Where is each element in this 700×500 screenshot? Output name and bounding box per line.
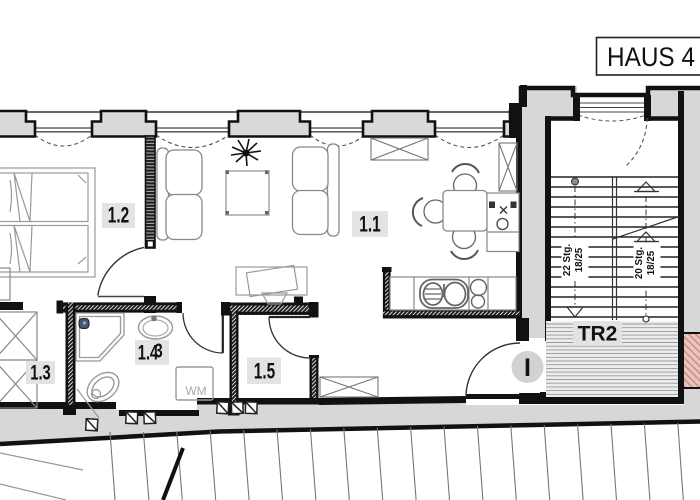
svg-text:1.3: 1.3	[30, 361, 50, 384]
svg-text:1.5: 1.5	[254, 360, 276, 384]
svg-text:22 Stg.: 22 Stg.	[562, 244, 573, 276]
svg-text:WM: WM	[185, 384, 206, 398]
svg-text:I: I	[524, 354, 531, 382]
svg-text:3: 3	[154, 339, 162, 362]
svg-text:HAUS 4: HAUS 4	[607, 42, 695, 72]
svg-text:TR2: TR2	[578, 323, 618, 346]
svg-text:20 Stg.: 20 Stg.	[634, 247, 645, 279]
svg-text:1.2: 1.2	[108, 204, 129, 228]
svg-text:18/25: 18/25	[646, 250, 657, 275]
svg-text:18/25: 18/25	[574, 247, 585, 272]
svg-text:1.1: 1.1	[359, 213, 381, 237]
